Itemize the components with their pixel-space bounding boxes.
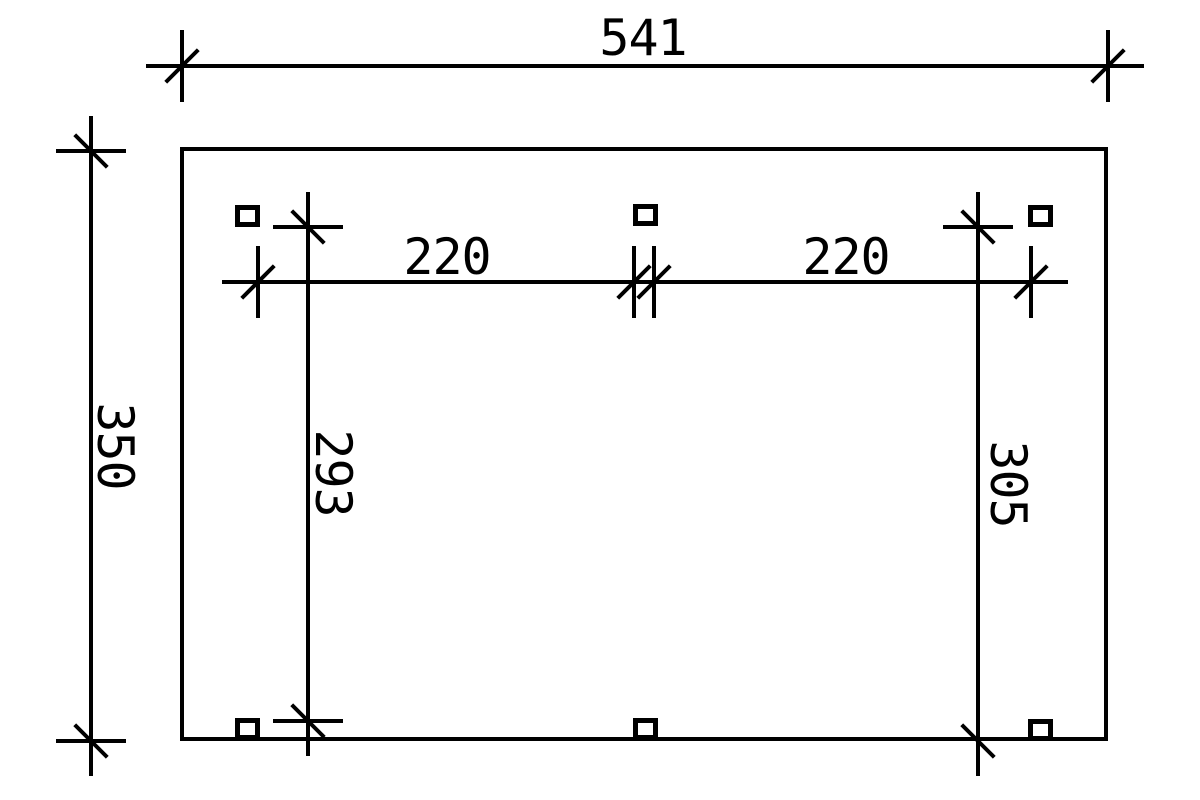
dim-label-inner-right: 305 xyxy=(983,434,1033,534)
dim-label-inner-left: 293 xyxy=(308,423,358,523)
floor-plan-drawing: 541 350 220 220 293 xyxy=(0,0,1200,800)
dim-label-total-depth: 350 xyxy=(90,396,140,496)
dim-label-bay-left: 220 xyxy=(397,232,497,282)
dim-label-total-width: 541 xyxy=(593,13,693,63)
post-top-right xyxy=(1028,205,1053,227)
post-bottom-middle xyxy=(633,718,658,740)
post-bottom-right xyxy=(1028,719,1053,741)
post-top-middle xyxy=(633,204,658,226)
post-top-left xyxy=(235,205,260,227)
post-bottom-left xyxy=(235,718,260,740)
dim-label-bay-right: 220 xyxy=(796,232,896,282)
dimension-line-bays xyxy=(222,280,1068,284)
